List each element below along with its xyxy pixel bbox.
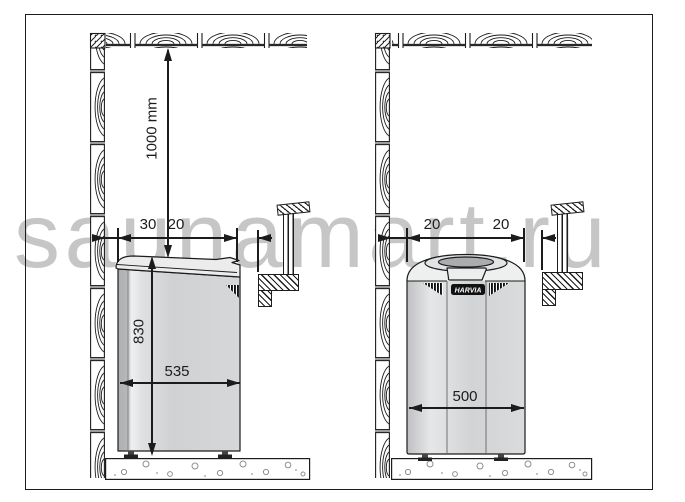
arrow-down-icon bbox=[148, 443, 156, 456]
arrow-right-icon bbox=[227, 379, 240, 387]
heater-right: HARVIA bbox=[398, 246, 533, 464]
arrow-left-icon bbox=[542, 234, 555, 242]
arrow-left-icon bbox=[407, 234, 420, 242]
bench-left-edge bbox=[258, 290, 272, 307]
heater-left-body bbox=[118, 269, 240, 451]
room-structure bbox=[0, 0, 685, 502]
dim-line-500 bbox=[409, 407, 524, 408]
bench-right-edge bbox=[542, 289, 556, 306]
dim-line-535 bbox=[120, 382, 240, 383]
heater-left-feet bbox=[124, 451, 232, 458]
dim-label-bench-clearance: 20 bbox=[164, 216, 188, 233]
bench-right-seat bbox=[542, 272, 583, 290]
dim-label-heater-width: 535 bbox=[157, 363, 197, 380]
bench-left-legs bbox=[283, 213, 294, 276]
arrow-right-icon bbox=[92, 234, 105, 242]
arrow-left-icon bbox=[409, 404, 422, 412]
dim-line-20-20 bbox=[378, 237, 524, 238]
dim-label-bench-clearance: 20 bbox=[489, 216, 513, 233]
ceiling-left bbox=[106, 33, 307, 48]
arrow-up-icon bbox=[148, 256, 156, 269]
dim-line-830 bbox=[151, 262, 152, 448]
ceiling-right bbox=[392, 33, 592, 48]
dim-label-ceiling-clearance: 1000 mm bbox=[144, 94, 161, 164]
bench-right-legs bbox=[557, 213, 568, 274]
arrow-right-icon bbox=[378, 234, 391, 242]
arrow-up-icon bbox=[164, 48, 172, 61]
dim-label-wall-clearance: 20 bbox=[420, 216, 444, 233]
arrow-right-icon bbox=[511, 234, 524, 242]
arrow-left-icon bbox=[258, 234, 271, 242]
heater-left bbox=[108, 248, 248, 463]
harvia-logo: HARVIA bbox=[451, 284, 485, 295]
arrow-right-icon bbox=[511, 404, 524, 412]
dim-label-heater-height: 830 bbox=[131, 312, 148, 352]
dim-line-30-20 bbox=[92, 237, 237, 238]
bench-left-seat bbox=[258, 274, 299, 291]
heater-right-feet bbox=[418, 454, 508, 461]
arrow-right-icon bbox=[224, 234, 237, 242]
arrow-left-icon bbox=[120, 379, 133, 387]
harvia-logo-text: HARVIA bbox=[455, 287, 482, 294]
heater-right-bowl bbox=[439, 257, 494, 267]
installation-diagram: saunamart.ru bbox=[0, 0, 685, 502]
arrow-down-icon bbox=[164, 245, 172, 258]
wall-right bbox=[375, 34, 390, 479]
arrow-left-icon bbox=[118, 234, 131, 242]
dim-label-heater-width: 500 bbox=[445, 388, 485, 405]
dim-label-wall-clearance: 30 bbox=[136, 216, 160, 233]
wall-left bbox=[90, 34, 105, 479]
